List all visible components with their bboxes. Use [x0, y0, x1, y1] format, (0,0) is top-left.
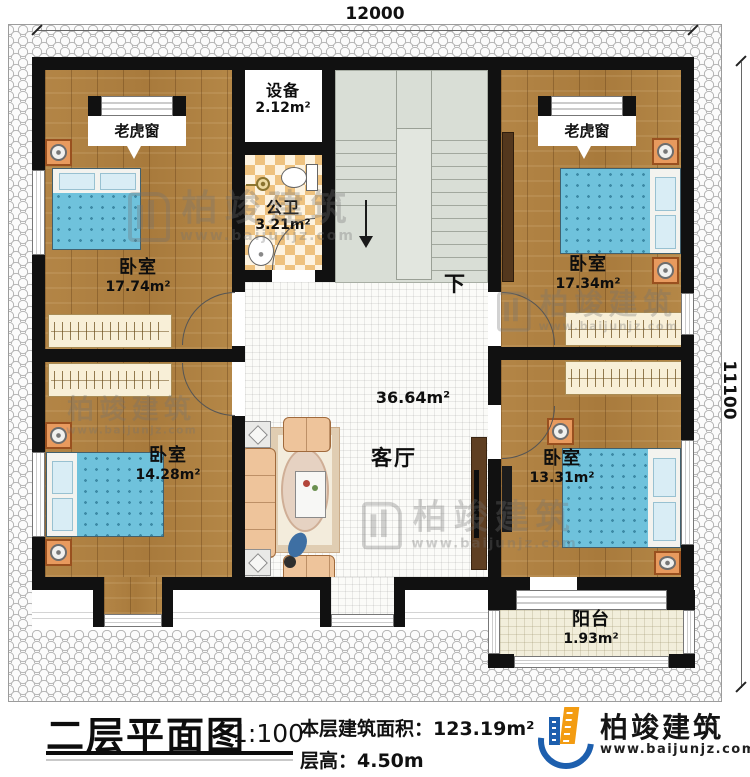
- dimension-height-label: 11100: [719, 355, 739, 425]
- dormer-right-window: [551, 96, 623, 116]
- balcony-window: [516, 590, 667, 610]
- stair-rail-upper: [396, 70, 432, 128]
- room-name: 阳台: [531, 610, 651, 631]
- pillow: [653, 458, 676, 497]
- legend-underline-light: [46, 759, 293, 761]
- lamp-icon: [50, 544, 67, 561]
- legend-floor-area-value: 123.19m²: [433, 718, 534, 740]
- legend-scale: 1:100: [232, 719, 304, 748]
- room-name: 卧室: [78, 258, 198, 279]
- wardrobe-top-right: [502, 132, 514, 282]
- wall-left-bedrooms-divider: [45, 349, 232, 362]
- stairs-down-label: 下: [444, 268, 465, 298]
- room-area: 17.74m²: [78, 279, 198, 295]
- bed-pillow-zone: [47, 453, 77, 536]
- watermark-url: www.baijunjz.com: [180, 228, 355, 244]
- pillow: [52, 461, 73, 494]
- table-decor: [303, 480, 310, 487]
- bay-left-floor: [104, 577, 162, 614]
- watermark: 柏竣建筑 www.baijunjz.com: [128, 190, 355, 244]
- nightstand: [45, 139, 72, 166]
- balcony-pier: [667, 590, 695, 610]
- living-room-name-label: 客厅: [356, 442, 432, 472]
- dimension-line-top: [37, 30, 693, 31]
- brand-name: 柏竣建筑: [600, 706, 724, 746]
- pillow: [52, 498, 73, 531]
- nightstand: [652, 257, 679, 284]
- door-opening-bedroom-bottom-right: [488, 405, 501, 459]
- watermark-url: www.baijunjz.com: [66, 424, 197, 436]
- dormer-right-label: 老虎窗: [538, 116, 636, 146]
- bed-pillow-zone: [648, 449, 680, 547]
- lamp-icon: [657, 262, 674, 279]
- floor-plan: 下 老虎窗 老虎窗: [0, 0, 750, 777]
- room-name: 设备: [223, 82, 343, 100]
- lamp-icon: [50, 427, 67, 444]
- stair-direction-line: [365, 200, 367, 236]
- dimension-line-right: [741, 62, 742, 688]
- side-table: [244, 549, 271, 576]
- sofa-long: [241, 448, 276, 558]
- watermark-name: 柏竣建筑: [180, 190, 355, 228]
- bed-pillow-zone: [650, 169, 680, 253]
- dormer-left-window: [101, 96, 173, 116]
- coffee-table: [295, 471, 326, 518]
- watermark-url: www.baijunjz.com: [411, 536, 577, 551]
- balcony-rail-right: [683, 610, 695, 654]
- balcony-pier: [488, 590, 516, 610]
- wall-north: [32, 57, 694, 70]
- watermark: 柏竣建筑 www.baijunjz.com: [66, 396, 197, 436]
- room-name: 卧室: [502, 449, 622, 470]
- window-east-lower: [681, 440, 694, 545]
- watermark-logo-icon: [497, 292, 531, 332]
- bay-center-wall: [394, 577, 405, 627]
- closet: [565, 361, 688, 395]
- wall-equipment-south: [245, 142, 322, 155]
- window-east-middle: [681, 293, 694, 335]
- room-name: 卧室: [108, 446, 228, 467]
- brand-building-blue: [549, 717, 560, 745]
- room-area: 1.93m²: [531, 631, 651, 647]
- closet: [48, 314, 172, 348]
- stair-direction-arrow: [359, 236, 373, 248]
- nightstand: [654, 551, 681, 575]
- room-label-balcony: 阳台 1.93m²: [531, 610, 651, 647]
- room-area: 2.12m²: [223, 100, 343, 116]
- balcony-rail-front: [514, 656, 669, 668]
- legend-floor-height-value: 4.50m: [357, 750, 424, 772]
- legend-floor-area: 本层建筑面积：123.19m²: [300, 714, 534, 741]
- dormer-left-pointer: [127, 146, 141, 159]
- stair-well: [396, 128, 432, 280]
- watermark-url: www.baijunjz.com: [539, 320, 679, 333]
- balcony-rail-left: [488, 610, 500, 654]
- room-label-bedroom-top-left: 卧室 17.74m²: [78, 258, 198, 295]
- bay-left-wall: [162, 577, 173, 627]
- room-name: 卧室: [528, 255, 648, 276]
- lamp-icon: [657, 143, 674, 160]
- side-table: [244, 421, 271, 448]
- living-room-area-label: 36.64m²: [363, 388, 463, 407]
- wall-right-bedrooms-divider: [501, 347, 681, 360]
- lamp-icon: [50, 144, 67, 161]
- brand-url: www.baijunjz.com: [600, 742, 750, 757]
- room-area: 36.64m²: [363, 388, 463, 407]
- pillow: [100, 173, 136, 190]
- room-label-bedroom-bottom-right: 卧室 13.31m²: [502, 449, 622, 486]
- watermark-logo-icon: [362, 502, 402, 550]
- brand-logo-icon: [538, 704, 594, 762]
- bay-left-wall: [93, 577, 104, 627]
- door-opening-bathroom: [272, 270, 315, 282]
- toilet-tank: [306, 164, 318, 191]
- room-area: 13.31m²: [502, 470, 622, 486]
- window-west-lower: [32, 452, 45, 537]
- watermark: 柏竣建筑 www.baijunjz.com: [362, 500, 578, 551]
- balcony-corner-pier: [488, 654, 514, 668]
- watermark-logo-icon: [128, 192, 170, 242]
- table-decor: [312, 485, 318, 491]
- pillow: [655, 177, 676, 211]
- lamp-icon: [552, 423, 569, 440]
- bed-top-right: [560, 168, 681, 254]
- room-area: 14.28m²: [108, 467, 228, 483]
- person-head: [284, 556, 296, 568]
- sofa-armchair-top: [283, 417, 331, 452]
- window-west-upper: [32, 170, 45, 255]
- room-label-equipment: 设备 2.12m²: [223, 82, 343, 116]
- watermark-name: 柏竣建筑: [66, 396, 197, 424]
- toilet-bowl: [281, 167, 307, 188]
- legend-floor-height-label: 层高：: [300, 750, 357, 772]
- nightstand: [45, 539, 72, 566]
- dormer-left-label: 老虎窗: [88, 116, 186, 146]
- room-label-bedroom-bottom-left: 卧室 14.28m²: [108, 446, 228, 483]
- legend-floor-area-label: 本层建筑面积：: [300, 718, 433, 740]
- pillow: [59, 173, 95, 190]
- bed-pillow-zone: [53, 169, 140, 193]
- room-name: 客厅: [356, 442, 432, 472]
- watermark-name: 柏竣建筑: [411, 500, 577, 536]
- bay-center-window: [331, 614, 394, 627]
- dormer-right-pointer: [577, 146, 591, 159]
- legend-floor-height: 层高：4.50m: [300, 746, 424, 773]
- balcony-corner-pier: [669, 654, 695, 668]
- lamp-icon: [659, 556, 676, 570]
- dimension-width-label: 12000: [330, 4, 420, 24]
- bay-center-wall: [320, 577, 331, 627]
- legend-underline: [46, 751, 293, 755]
- watermark-name: 柏竣建筑: [539, 290, 679, 320]
- pillow: [655, 215, 676, 249]
- room-label-bedroom-top-right: 卧室 17.34m²: [528, 255, 648, 292]
- stair-steps-right: [430, 128, 488, 278]
- door-opening-balcony: [530, 577, 577, 590]
- pillow: [653, 502, 676, 541]
- bay-left-window: [104, 614, 162, 627]
- bay-center-floor: [331, 577, 394, 614]
- watermark: 柏竣建筑 www.baijunjz.com: [497, 290, 679, 333]
- closet: [48, 363, 172, 397]
- nightstand: [652, 138, 679, 165]
